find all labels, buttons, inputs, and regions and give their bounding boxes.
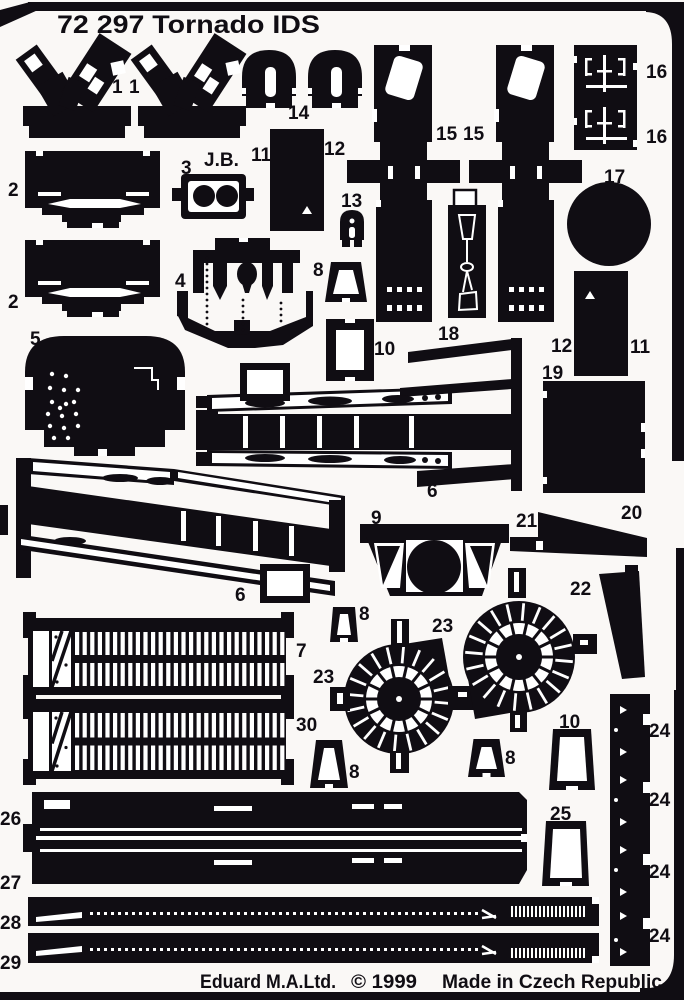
svg-text:16: 16 xyxy=(646,127,667,148)
svg-text:24: 24 xyxy=(649,926,671,947)
svg-text:14: 14 xyxy=(288,103,310,124)
svg-text:16: 16 xyxy=(646,62,667,83)
svg-text:72 297 Tornado IDS: 72 297 Tornado IDS xyxy=(57,11,320,39)
svg-text:6: 6 xyxy=(427,481,438,502)
svg-text:3: 3 xyxy=(181,158,192,179)
svg-text:Eduard M.A.Ltd.: Eduard M.A.Ltd. xyxy=(200,972,336,993)
svg-text:30: 30 xyxy=(296,715,317,736)
svg-text:8: 8 xyxy=(505,748,516,769)
svg-text:24: 24 xyxy=(649,721,671,742)
svg-text:12: 12 xyxy=(551,336,572,357)
svg-text:28: 28 xyxy=(0,913,21,934)
svg-text:8: 8 xyxy=(313,260,324,281)
svg-text:15: 15 xyxy=(436,124,458,145)
svg-text:J.B.: J.B. xyxy=(204,150,239,171)
svg-text:25: 25 xyxy=(550,804,572,825)
svg-text:10: 10 xyxy=(559,712,580,733)
svg-text:27: 27 xyxy=(0,873,21,894)
svg-text:11: 11 xyxy=(251,145,272,166)
svg-text:22: 22 xyxy=(570,579,591,600)
svg-text:13: 13 xyxy=(341,191,362,212)
svg-text:24: 24 xyxy=(649,790,671,811)
svg-text:1: 1 xyxy=(129,77,140,98)
svg-text:4: 4 xyxy=(175,271,186,292)
svg-text:8: 8 xyxy=(359,604,370,625)
svg-text:© 1999: © 1999 xyxy=(351,972,417,993)
svg-text:Made in Czech Republic: Made in Czech Republic xyxy=(442,972,662,993)
svg-text:1: 1 xyxy=(112,77,123,98)
svg-text:19: 19 xyxy=(542,363,563,384)
svg-text:15: 15 xyxy=(463,124,485,145)
svg-text:2: 2 xyxy=(8,292,19,313)
svg-text:12: 12 xyxy=(324,139,345,160)
svg-text:11: 11 xyxy=(630,337,651,358)
svg-text:24: 24 xyxy=(649,862,671,883)
svg-text:20: 20 xyxy=(621,503,642,524)
svg-text:18: 18 xyxy=(438,324,459,345)
svg-text:17: 17 xyxy=(604,167,625,188)
svg-text:21: 21 xyxy=(516,511,538,532)
svg-text:7: 7 xyxy=(296,641,307,662)
svg-text:5: 5 xyxy=(30,329,41,350)
svg-text:6: 6 xyxy=(235,585,246,606)
svg-text:2: 2 xyxy=(8,180,19,201)
svg-text:9: 9 xyxy=(371,508,382,529)
svg-text:8: 8 xyxy=(349,762,360,783)
svg-text:23: 23 xyxy=(313,667,334,688)
svg-text:26: 26 xyxy=(0,809,21,830)
svg-text:29: 29 xyxy=(0,953,21,974)
svg-text:23: 23 xyxy=(432,616,453,637)
svg-text:10: 10 xyxy=(374,339,395,360)
